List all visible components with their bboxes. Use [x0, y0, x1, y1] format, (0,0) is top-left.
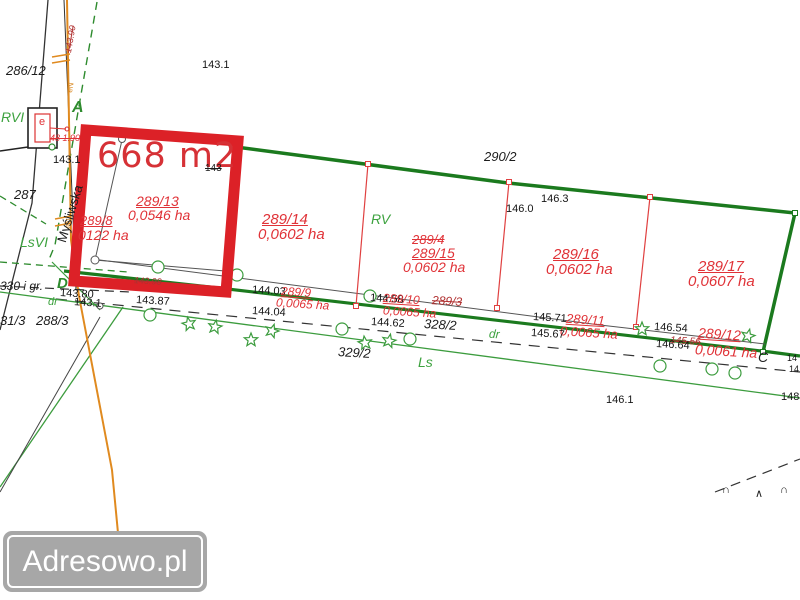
watermark-brand: Adresowo.pl: [22, 545, 187, 579]
parcel-number-289-8: 289/8: [80, 214, 113, 227]
survey-marker-icon: [354, 304, 359, 309]
survey-marker-icon: [648, 195, 653, 200]
elevation-143-1-road: 143.1: [53, 155, 81, 166]
divider-14-15: [356, 164, 368, 306]
parcel-number-289-16: 289/16: [553, 247, 599, 262]
boundary-point-icon: [49, 144, 55, 150]
landuse-label-ls: Ls: [418, 355, 433, 369]
boundary-right-green: [763, 213, 795, 352]
watermark-frame: Adresowo.pl: [7, 535, 203, 588]
divider-16-17: [636, 197, 650, 327]
cadastral-map: 286/12 143.1 143.90 eN eN RVI A e 48 1.9…: [0, 0, 800, 600]
neighbor-label-329-2: 329/2: [338, 345, 371, 360]
tree-icon: [404, 333, 416, 345]
elevation-144-04: 144.04: [252, 306, 286, 319]
elevation-14b: 14: [789, 365, 799, 374]
parcel-area-289-17: 0,0607 ha: [688, 274, 755, 289]
section-point-a: A: [72, 100, 84, 116]
elevation-146-0: 146.0: [506, 204, 534, 215]
bush-icon: ∩: [722, 484, 730, 496]
parcel-number-289-17: 289/17: [698, 259, 744, 274]
conifer-icon: [635, 322, 648, 335]
parcel-area-289-14: 0,0602 ha: [258, 227, 325, 242]
landuse-label-rvi: RVI: [1, 110, 24, 124]
section-point-c: C: [758, 350, 768, 364]
tree-icon: [729, 367, 741, 379]
neighbor-label-328-2: 328/2: [424, 317, 457, 332]
conifer-icon: [264, 322, 281, 338]
parcel-area-289-13: 0,0546 ha: [128, 208, 190, 222]
parcel-area-289-8: 0122 ha: [78, 228, 129, 242]
neighbor-label-31-3: 31/3: [0, 314, 25, 327]
elevation-146-3: 146.3: [541, 194, 569, 205]
parcel-number-289-14: 289/14: [262, 212, 308, 227]
conifer-icon: [740, 328, 756, 344]
transformer-label-e: e: [39, 117, 45, 128]
survey-marker-icon: [793, 211, 798, 216]
parcel-area-289-16: 0,0602 ha: [546, 262, 613, 277]
conifer-icon: [244, 333, 257, 346]
neighbor-label-286-12: 286/12: [6, 64, 46, 77]
parcel-number-289-13: 289/13: [136, 194, 179, 208]
black-southwest-line: [0, 317, 100, 492]
neighbor-label-288-3: 288/3: [36, 314, 69, 327]
elevation-146-1: 146.1: [606, 395, 634, 406]
elevation-146-54: 146.54: [654, 322, 688, 335]
landuse-dashed-lsvi: [0, 262, 128, 272]
bush-icon: ∧: [755, 487, 763, 500]
tree-icon: [336, 323, 348, 335]
building-boundary: [0, 147, 28, 151]
survey-marker-icon: [507, 180, 512, 185]
elevation-144-62: 144.62: [371, 317, 405, 330]
elevation-143-1-row: 143.1: [74, 297, 102, 310]
landuse-label-dr-left: dr: [48, 297, 58, 308]
tree-icon: [706, 363, 718, 375]
tree-icon: [654, 360, 666, 372]
bush-icon: ∩: [780, 484, 788, 496]
survey-point-icon: [91, 256, 99, 264]
landuse-label-lsvi: LsVI: [20, 235, 48, 249]
parcel-number-289-12: 289/12: [698, 326, 742, 343]
watermark-badge[interactable]: Adresowo.pl: [3, 531, 207, 592]
struck-elevation-143: 143: [205, 164, 222, 174]
conifer-icon: [381, 333, 397, 348]
tree-icon: [144, 309, 156, 321]
struck-elevation-143-98: 143.98: [134, 276, 162, 287]
tree-icon: [152, 261, 164, 273]
pole-note-mid: 48 1.90: [50, 134, 80, 143]
survey-marker-icon: [366, 162, 371, 167]
elevation-145-67: 145.67: [531, 328, 565, 341]
elevation-148: 148: [781, 392, 799, 403]
elevation-143-87: 143.87: [136, 295, 170, 308]
parcel-number-289-15: 289/15: [412, 246, 455, 260]
divider-15-16: [497, 182, 509, 308]
parcel-area-289-12: 0,0061 ha: [695, 342, 758, 360]
neighbor-label-287: 287: [14, 188, 36, 201]
landuse-label-dr-mid: dr: [489, 328, 500, 341]
parcel-area-289-15: 0,0602 ha: [403, 260, 465, 274]
elevation-146-64: 146.64: [656, 339, 690, 352]
landuse-label-rv: RV: [371, 212, 390, 226]
survey-marker-icon: [495, 306, 500, 311]
elevation-143-1-top: 143.1: [202, 60, 230, 71]
parcel-area-289-11: 0,0065 ha: [560, 324, 619, 341]
neighbor-label-330: 330 i gr.: [0, 280, 43, 292]
neighbor-label-290-2: 290/2: [484, 150, 517, 163]
elevation-14a: 14: [787, 354, 797, 363]
